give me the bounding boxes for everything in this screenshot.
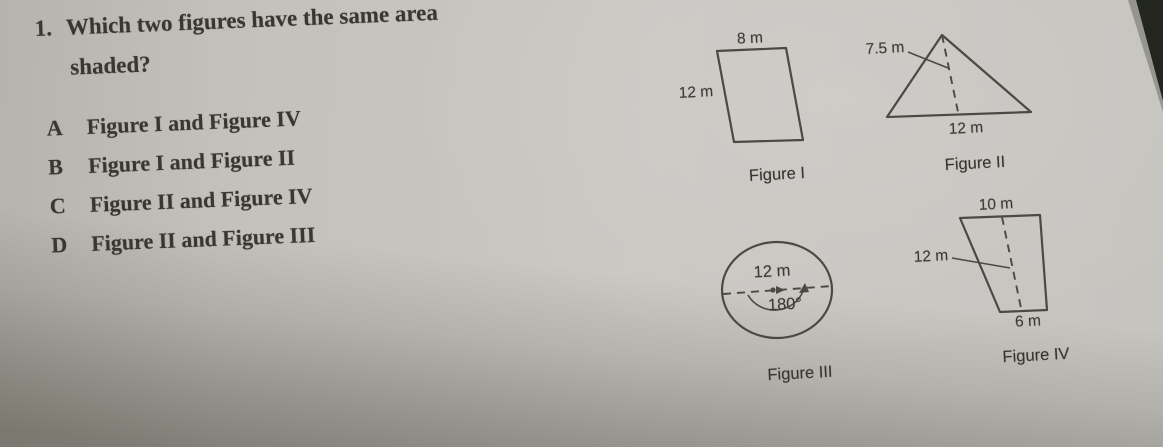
option-a-text: Figure I and Figure IV [86, 105, 301, 139]
figure-4-bottom-dimension: 6 m [1015, 312, 1042, 331]
figure-3-angle-label: 180° [767, 295, 802, 316]
figure-4-top-dimension: 10 m [978, 195, 1013, 215]
figure-3-diameter-dimension: 12 m [753, 262, 791, 283]
figure-2-caption: Figure II [944, 153, 1005, 175]
figure-4-caption: Figure IV [1002, 345, 1070, 367]
question-number: 1. [34, 15, 52, 42]
option-c: CFigure II and Figure IV [49, 183, 313, 220]
option-c-text: Figure II and Figure IV [89, 183, 313, 217]
option-d-letter: D [51, 232, 76, 259]
figure-3-caption: Figure III [767, 363, 833, 385]
option-a: AFigure I and Figure IV [46, 105, 301, 141]
option-a-letter: A [46, 115, 71, 142]
option-b: BFigure I and Figure II [48, 145, 296, 181]
worksheet-photo: 1.Which two figures have the same area s… [0, 0, 1163, 447]
question-block: 1.Which two figures have the same area s… [34, 0, 565, 292]
option-b-text: Figure I and Figure II [88, 145, 296, 178]
option-d-text: Figure II and Figure III [91, 222, 316, 256]
figure-4-height-dimension: 12 m [913, 247, 948, 267]
option-c-letter: C [49, 193, 74, 220]
figure-2-base-dimension: 12 m [948, 119, 983, 139]
figure-2-height-dimension: 7.5 m [865, 39, 905, 59]
figure-1-caption: Figure I [749, 164, 806, 186]
option-d: DFigure II and Figure III [51, 222, 316, 259]
figure-1-left-dimension: 12 m [678, 83, 713, 103]
question-line-2: shaded? [70, 51, 152, 80]
option-b-letter: B [48, 154, 73, 181]
figure-1-top-dimension: 8 m [737, 29, 764, 48]
